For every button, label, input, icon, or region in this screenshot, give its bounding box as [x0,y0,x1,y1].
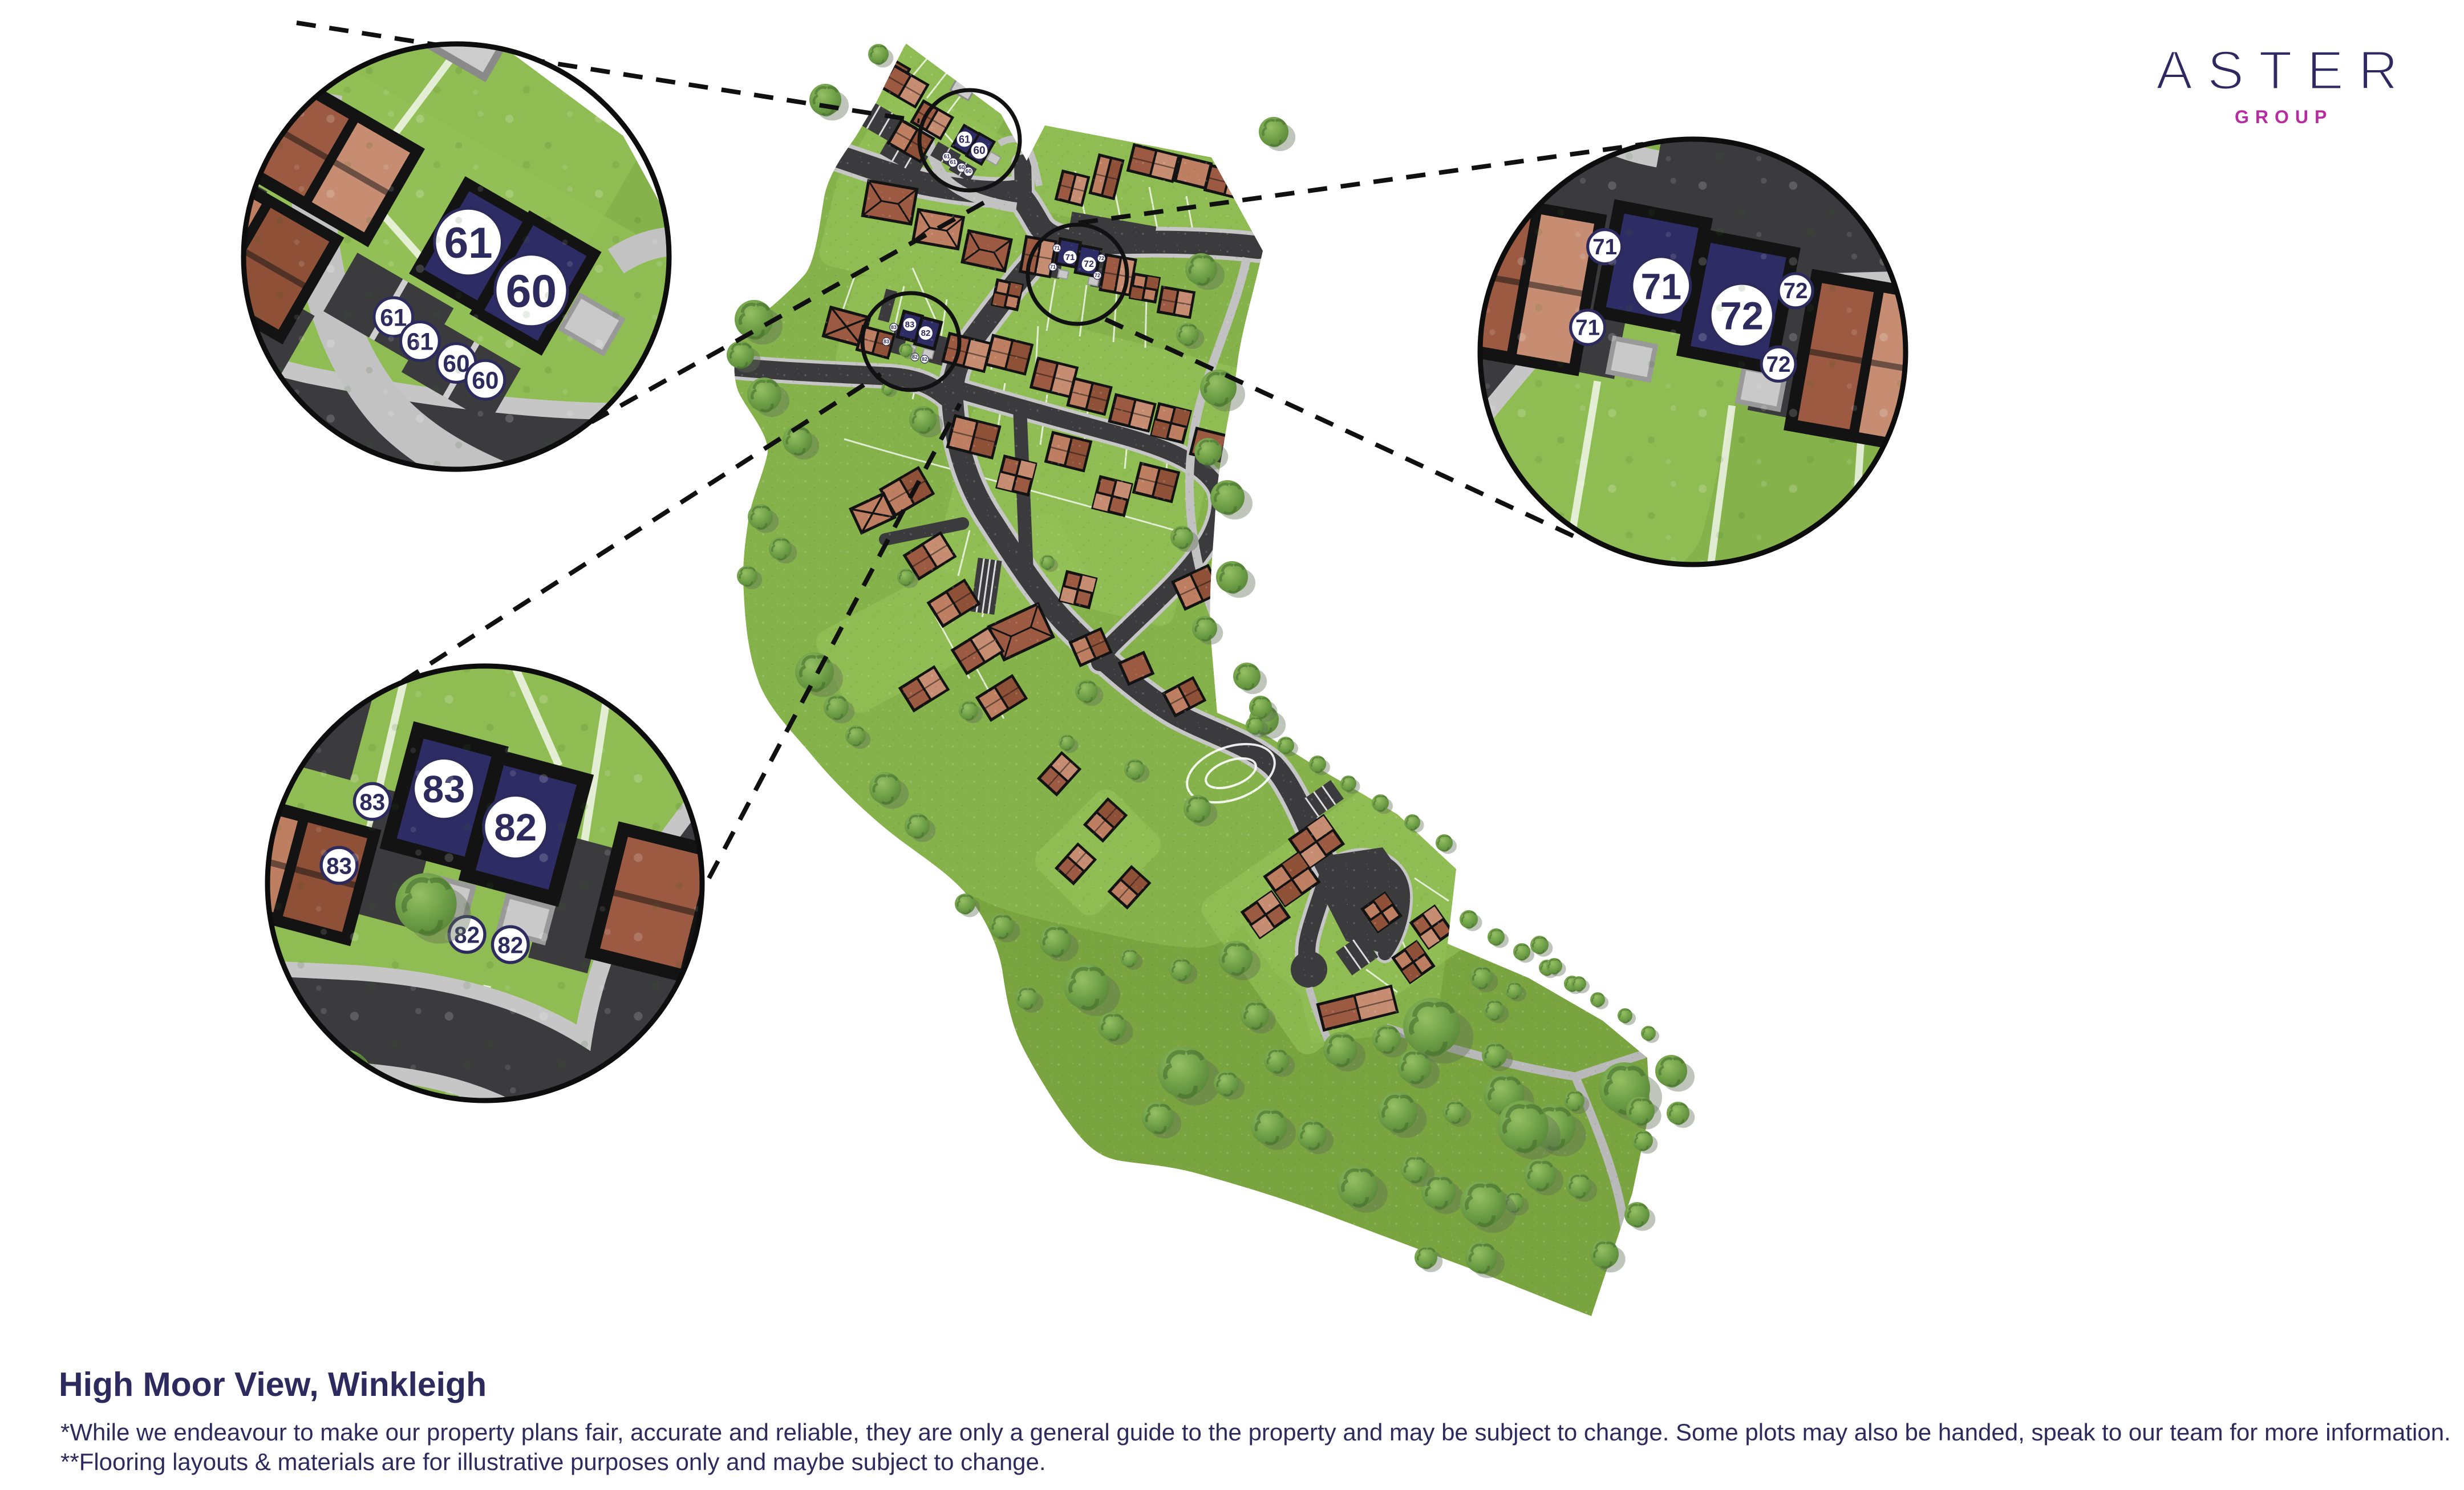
svg-text:High Moor View, Winkleigh: High Moor View, Winkleigh [59,1366,487,1403]
svg-text:GROUP: GROUP [2235,107,2333,127]
svg-text:*While we endeavour to make ou: *While we endeavour to make our property… [60,1419,2451,1446]
svg-text:**Flooring layouts & materials: **Flooring layouts & materials are for i… [60,1448,1046,1475]
svg-text:ASTER: ASTER [2156,40,2413,101]
